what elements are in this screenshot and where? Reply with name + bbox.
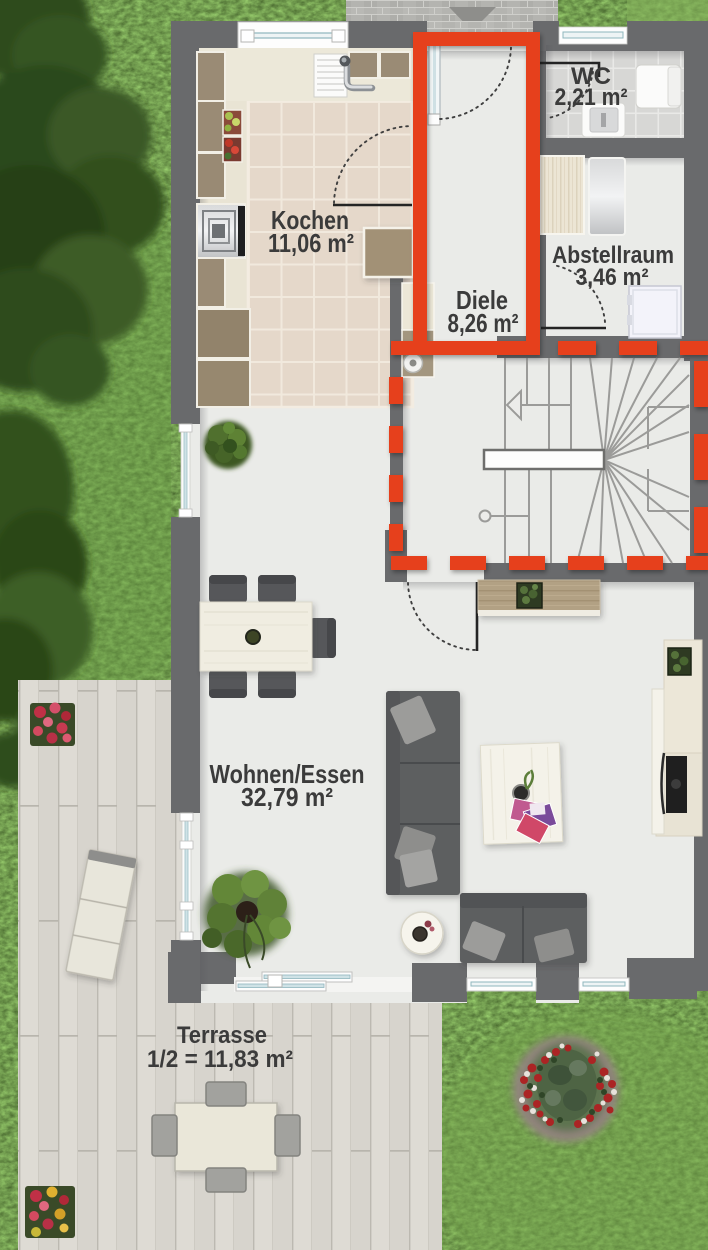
- svg-text:11,06 m²: 11,06 m²: [268, 228, 354, 258]
- svg-text:8,26 m²: 8,26 m²: [448, 308, 519, 338]
- svg-text:3,46 m²: 3,46 m²: [576, 264, 649, 291]
- svg-text:2,21 m²: 2,21 m²: [555, 84, 628, 111]
- svg-text:1/2 = 11,83 m²: 1/2 = 11,83 m²: [147, 1046, 293, 1073]
- svg-text:Terrasse: Terrasse: [177, 1022, 267, 1049]
- svg-text:32,79 m²: 32,79 m²: [241, 782, 333, 812]
